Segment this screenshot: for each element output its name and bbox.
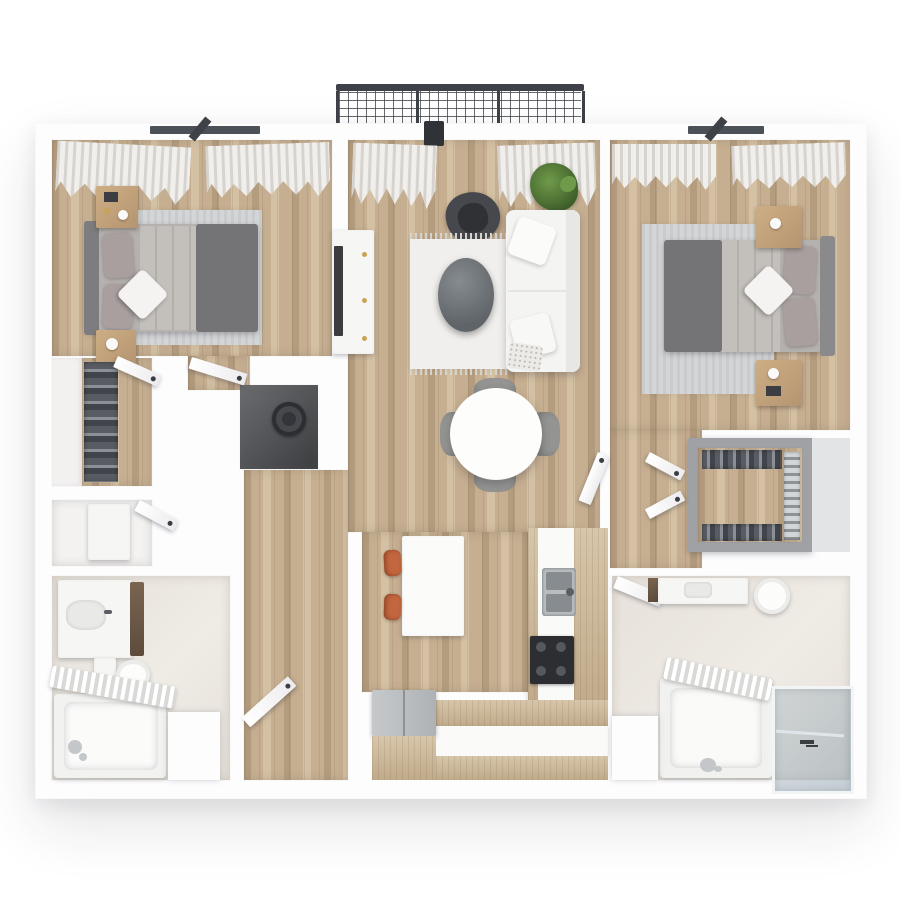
closet-left-hanging-clothes (84, 362, 118, 482)
bathroom-left-vanity-wood (130, 582, 144, 656)
balcony-door-frame (424, 121, 444, 146)
sofa-seam (508, 290, 566, 292)
washer-door-glass (282, 412, 296, 426)
kitchen-counter-right-cabinets (574, 528, 608, 706)
nightstand-tray (106, 338, 118, 350)
cooktop-burner (556, 642, 566, 652)
bedroom-right-blanket (664, 240, 722, 352)
closet-right-side-panel (812, 438, 850, 552)
bedroom-right-nightstand (756, 360, 802, 406)
kitchen-sink-basin (546, 594, 572, 612)
bathroom-left-sink (66, 600, 106, 630)
dining-table (450, 388, 542, 480)
balcony-railing-mesh (339, 91, 581, 125)
closet-right-hanging-clothes-bottom (702, 524, 782, 541)
balcony-rail-top (336, 84, 584, 91)
bathtub-right-faucet (700, 758, 716, 772)
closet-right-shelf-folded-clothes (784, 452, 800, 540)
nightstand-cup (768, 368, 779, 379)
nightstand-gold-decor (104, 208, 110, 214)
console-knob (362, 336, 367, 341)
refrigerator-door-split (403, 690, 405, 736)
hallway-left-floor (244, 470, 348, 780)
balcony-rail-post (416, 87, 419, 125)
nightstand-cup (770, 218, 781, 229)
bathtub-left-basin (64, 702, 158, 770)
bathroom-right-vanity-wood (648, 578, 658, 602)
bedroom-left-pillow (101, 232, 134, 279)
kitchen-faucet (566, 588, 574, 596)
bathtub-right-basin (670, 688, 762, 768)
nightstand-photo-frame (766, 386, 781, 396)
fridge-cabinet (372, 736, 436, 780)
kitchen-counter-bottom-cabinets (436, 756, 608, 780)
bathtub-left-faucet (68, 740, 82, 754)
cooktop-burner (536, 666, 546, 676)
storage-cabinet (88, 504, 130, 560)
console-knob (362, 298, 367, 303)
kitchen-counter-bottom-top (436, 726, 608, 756)
glass-shower-faucet (800, 740, 814, 744)
sofa-pillow-textured (506, 342, 543, 372)
nightstand-photo-frame (104, 192, 118, 202)
cooktop-burner (536, 642, 546, 652)
oval-coffee-table (438, 258, 494, 332)
bathroom-right-toilet (754, 578, 790, 614)
balcony-rail-post (497, 87, 500, 125)
bar-stool (384, 594, 402, 621)
kitchen-island (402, 536, 464, 636)
cooktop-burner (556, 666, 566, 676)
bathroom-left-faucet (104, 610, 112, 614)
bathroom-right-wall-stub (612, 716, 658, 780)
kitchen-counter-bottom-band (436, 700, 608, 726)
bedroom-right-window (688, 126, 764, 134)
bedroom-left-blanket (196, 224, 258, 332)
bedroom-right-pillow (782, 297, 818, 348)
living-room-curtain (351, 143, 437, 210)
bar-stool (383, 550, 401, 577)
bathroom-left-wall-stub (168, 712, 220, 780)
nightstand-cup (118, 210, 128, 220)
closet-right-hanging-clothes-top (702, 450, 782, 469)
living-rug-fringe (410, 369, 508, 375)
tv (334, 246, 343, 336)
console-knob (362, 252, 367, 257)
closet-left-wardrobe-panel (52, 358, 82, 486)
floorplan-render (0, 0, 900, 900)
bathroom-right-sink (684, 582, 712, 598)
balcony-rail-side (336, 91, 339, 127)
bedroom-right-headboard (820, 236, 835, 356)
sofa-backrest (566, 210, 580, 372)
bedroom-left-headboard (84, 221, 99, 335)
balcony-rail-side (582, 91, 585, 127)
